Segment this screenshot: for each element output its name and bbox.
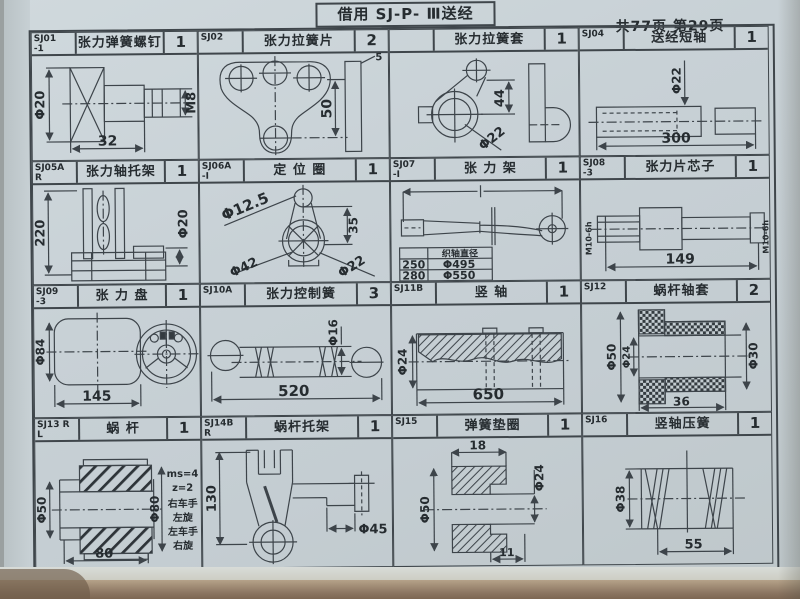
part-name: 张力拉簧套 [435,29,544,51]
dim-label: 650 [473,385,505,403]
part-cell-sj05a: SJ05A RL -Ⅰ 张力轴托架 1 [32,160,200,285]
parts-table: SJ01-1 张力弹簧螺钉 1 [29,24,780,576]
part-name: 张力控制簧 [246,283,356,305]
dim-label: 5 [375,52,382,63]
part-name: 张力弹簧螺钉 [77,32,163,54]
part-cell-sj07: SJ07-Ⅰ 张 力 架 1 [390,156,581,282]
dim-label: Φ45 [358,522,387,537]
part-qty: 3 [356,283,390,304]
dim-label: 50 [319,99,335,119]
drawing-sj13-worm: Φ50 Φ80 80 ms=4 z=2 右车手 左旋 左车手 右旋 [35,439,201,569]
sheet-title: 借用 SJ-P- Ⅲ送经 [315,1,495,28]
dim-label: Φ22 [336,253,369,281]
right-edge-shadow [778,0,800,599]
table-cell: Φ550 [443,269,476,281]
drawing-sj02-tension-spring-plate: 50 5 [199,51,389,159]
drawing-sj07-tension-frame: 织轴直径 250 Φ495 280 Φ550 [391,178,580,281]
dim-label: M10-6h [584,221,593,255]
drawing-sj09-tension-disc: Φ84 145 [34,306,200,417]
part-name: 竖 轴 [437,282,546,304]
drawing-sj12-worm-shaft-sleeve: Φ50 Φ24 Φ30 36 [582,301,771,413]
dim-label: Φ30 [746,342,760,369]
dim-label: 36 [673,395,690,409]
part-id: SJ15 [393,416,438,437]
part-name: 张力片芯子 [626,156,735,178]
dim-label: 18 [469,438,486,452]
dim-label: Φ80 [148,496,162,523]
dim-label: 11 [499,546,514,559]
drawing-sj04-letoff-short-shaft: Φ22 300 [580,48,769,156]
part-cell-sj01: SJ01-1 张力弹簧螺钉 1 [31,31,199,161]
page-bottom-edge [0,567,800,581]
part-id: SJ08-3 [581,157,626,178]
drawing-sj15-spring-washer: 18 Φ24 Φ50 11 [393,435,582,566]
part-id: SJ12 [582,281,627,302]
note-label: ms=4 [167,469,199,480]
part-name: 蜗杆轴套 [627,280,736,302]
dim-label: Φ20 [33,90,48,119]
desk-surface [0,580,800,599]
part-id: SJ06A-Ⅰ [200,160,245,181]
note-label: 右旋 [172,539,194,552]
dim-label: Φ50 [35,497,49,524]
note-label: 右车手 [167,497,198,510]
part-qty: 1 [545,157,579,178]
part-qty: 2 [354,30,388,51]
part-name: 张力拉簧片 [244,30,354,52]
part-cell-sj13: SJ13 RL 蜗 杆 1 [34,417,202,570]
dim-label: Φ50 [418,496,432,523]
dim-label: Φ16 [326,319,340,346]
note-label: 左车手 [167,525,198,538]
part-qty: 1 [546,281,580,302]
part-id: SJ10A [201,284,246,305]
part-id: SJ07-Ⅰ [391,159,436,180]
part-qty: 1 [164,161,198,182]
part-name: 张 力 盘 [79,285,165,307]
dim-label: M10-6h [761,220,770,254]
dim-label: Φ38 [613,486,627,513]
part-cell-sj14b: SJ14B RL -Ⅲ 蜗杆托架 1 [201,415,393,569]
part-qty: 1 [355,159,389,180]
dim-label: 149 [665,251,694,267]
drawing-sj08-tension-plate-core: M10-6h 149 M10-6h [581,177,770,280]
dim-label: Φ20 [176,209,191,238]
dim-label: 145 [82,389,111,405]
part-id: SJ16 [583,414,628,435]
part-id: SJ05A RL -Ⅰ [33,162,78,183]
dim-label: Φ22 [476,124,508,154]
part-name: 竖轴压簧 [628,413,737,435]
drawing-sj06a-locating-ring: Φ12.5 35 Φ42 Φ22 [200,180,390,283]
part-qty: 1 [357,416,391,437]
part-id: SJ01-1 [32,33,77,54]
dim-label: Φ24 [395,348,409,375]
part-id: SJ02 [199,31,244,52]
part-qty: 1 [735,156,769,177]
drawing-sj05a-tension-shaft-bracket: 220 Φ20 [33,182,199,284]
dim-label: Φ22 [669,67,683,94]
part-cell-sj02: SJ02 张力拉簧片 2 [198,29,390,160]
note-label: 左旋 [172,511,194,524]
part-cell-sj08: SJ08-3 张力片芯子 1 [580,155,771,281]
part-qty: 1 [544,28,578,49]
part-qty: 1 [166,418,200,439]
drawing-sj11b-vertical-shaft: Φ24 650 [392,302,581,414]
part-id: SJ09-3 [34,286,79,307]
part-cell-sj09: SJ09-3 张 力 盘 1 [33,284,201,418]
part-cell-tension-spring-sleeve: 张力拉簧套 1 [389,27,580,158]
dim-label: 35 [346,217,360,234]
part-qty: 1 [737,413,771,434]
table-cell: 280 [402,269,426,281]
part-cell-sj15: SJ15 弹簧垫圈 1 [392,413,583,567]
dim-label: 44 [493,89,508,107]
scanned-page: 借用 SJ-P- Ⅲ送经 共77页 第29页 SJ01-1 张力弹簧螺钉 1 [0,0,800,599]
drawing-sj14b-worm-bracket: 130 Φ45 [202,437,392,568]
page-corner-shadow [0,569,90,599]
part-cell-sj04: SJ04 送经短轴 1 [579,26,770,157]
dim-label: Φ24 [622,346,633,369]
dim-label: 220 [33,219,48,246]
part-qty: 2 [736,280,770,301]
part-name: 定 位 圈 [245,159,355,181]
part-id [390,30,435,51]
part-cell-sj16: SJ16 竖轴压簧 1 [582,412,773,566]
dim-label: Φ42 [228,255,261,281]
dim-label: 520 [278,382,309,400]
part-qty: 1 [165,285,199,306]
part-name: 送经短轴 [625,27,734,49]
drawing-sj01-tension-spring-screw: Φ20 32 M8 [32,53,198,160]
dim-label: 80 [95,547,113,562]
part-qty: 1 [163,32,197,53]
drawing-sj16-vertical-shaft-spring: Φ38 55 [583,434,772,565]
part-qty: 1 [547,414,581,435]
dim-label: 130 [205,485,220,512]
sheet-wrap: 借用 SJ-P- Ⅲ送经 共77页 第29页 SJ01-1 张力弹簧螺钉 1 [0,0,800,599]
part-cell-sj10a: SJ10A 张力控制簧 3 [200,282,392,417]
dim-label: Φ84 [34,339,48,366]
part-cell-sj06a: SJ06A-Ⅰ 定 位 圈 1 [199,158,391,284]
part-qty: 1 [734,27,768,48]
part-name: 蜗杆托架 [247,416,357,438]
dim-label: 300 [661,130,691,146]
dim-label: Φ24 [532,464,546,491]
part-name: 张 力 架 [436,158,545,180]
dim-label: 32 [98,133,118,149]
drawing-sj10a-tension-control-spring: Φ16 520 [201,304,391,416]
part-name: 弹簧垫圈 [438,415,547,437]
part-id: SJ04 [580,28,625,49]
dim-label: Φ12.5 [219,189,272,225]
part-id: SJ13 RL [35,419,80,440]
part-name: 张力轴托架 [78,161,164,183]
part-cell-sj12: SJ12 蜗杆轴套 2 [581,279,772,414]
part-name: 蜗 杆 [80,418,166,440]
drawing-tension-spring-sleeve: 44 Φ22 [390,49,579,157]
note-label: z=2 [172,483,193,494]
dim-label: M8 [184,92,198,114]
part-cell-sj11b: SJ11B 竖 轴 1 [391,280,582,415]
part-id: SJ11B [392,283,437,304]
part-id: SJ14B RL -Ⅲ [202,417,247,438]
dim-label: 55 [685,537,703,552]
dim-label: Φ50 [605,344,619,371]
